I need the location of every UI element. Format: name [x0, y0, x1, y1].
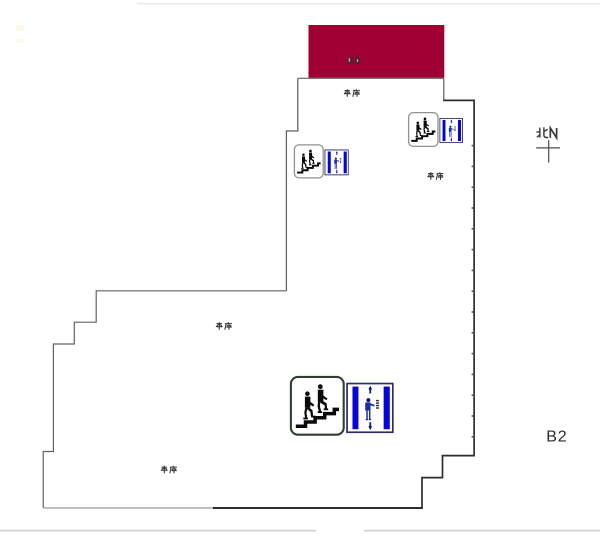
svg-text:B2: B2 [546, 429, 567, 446]
